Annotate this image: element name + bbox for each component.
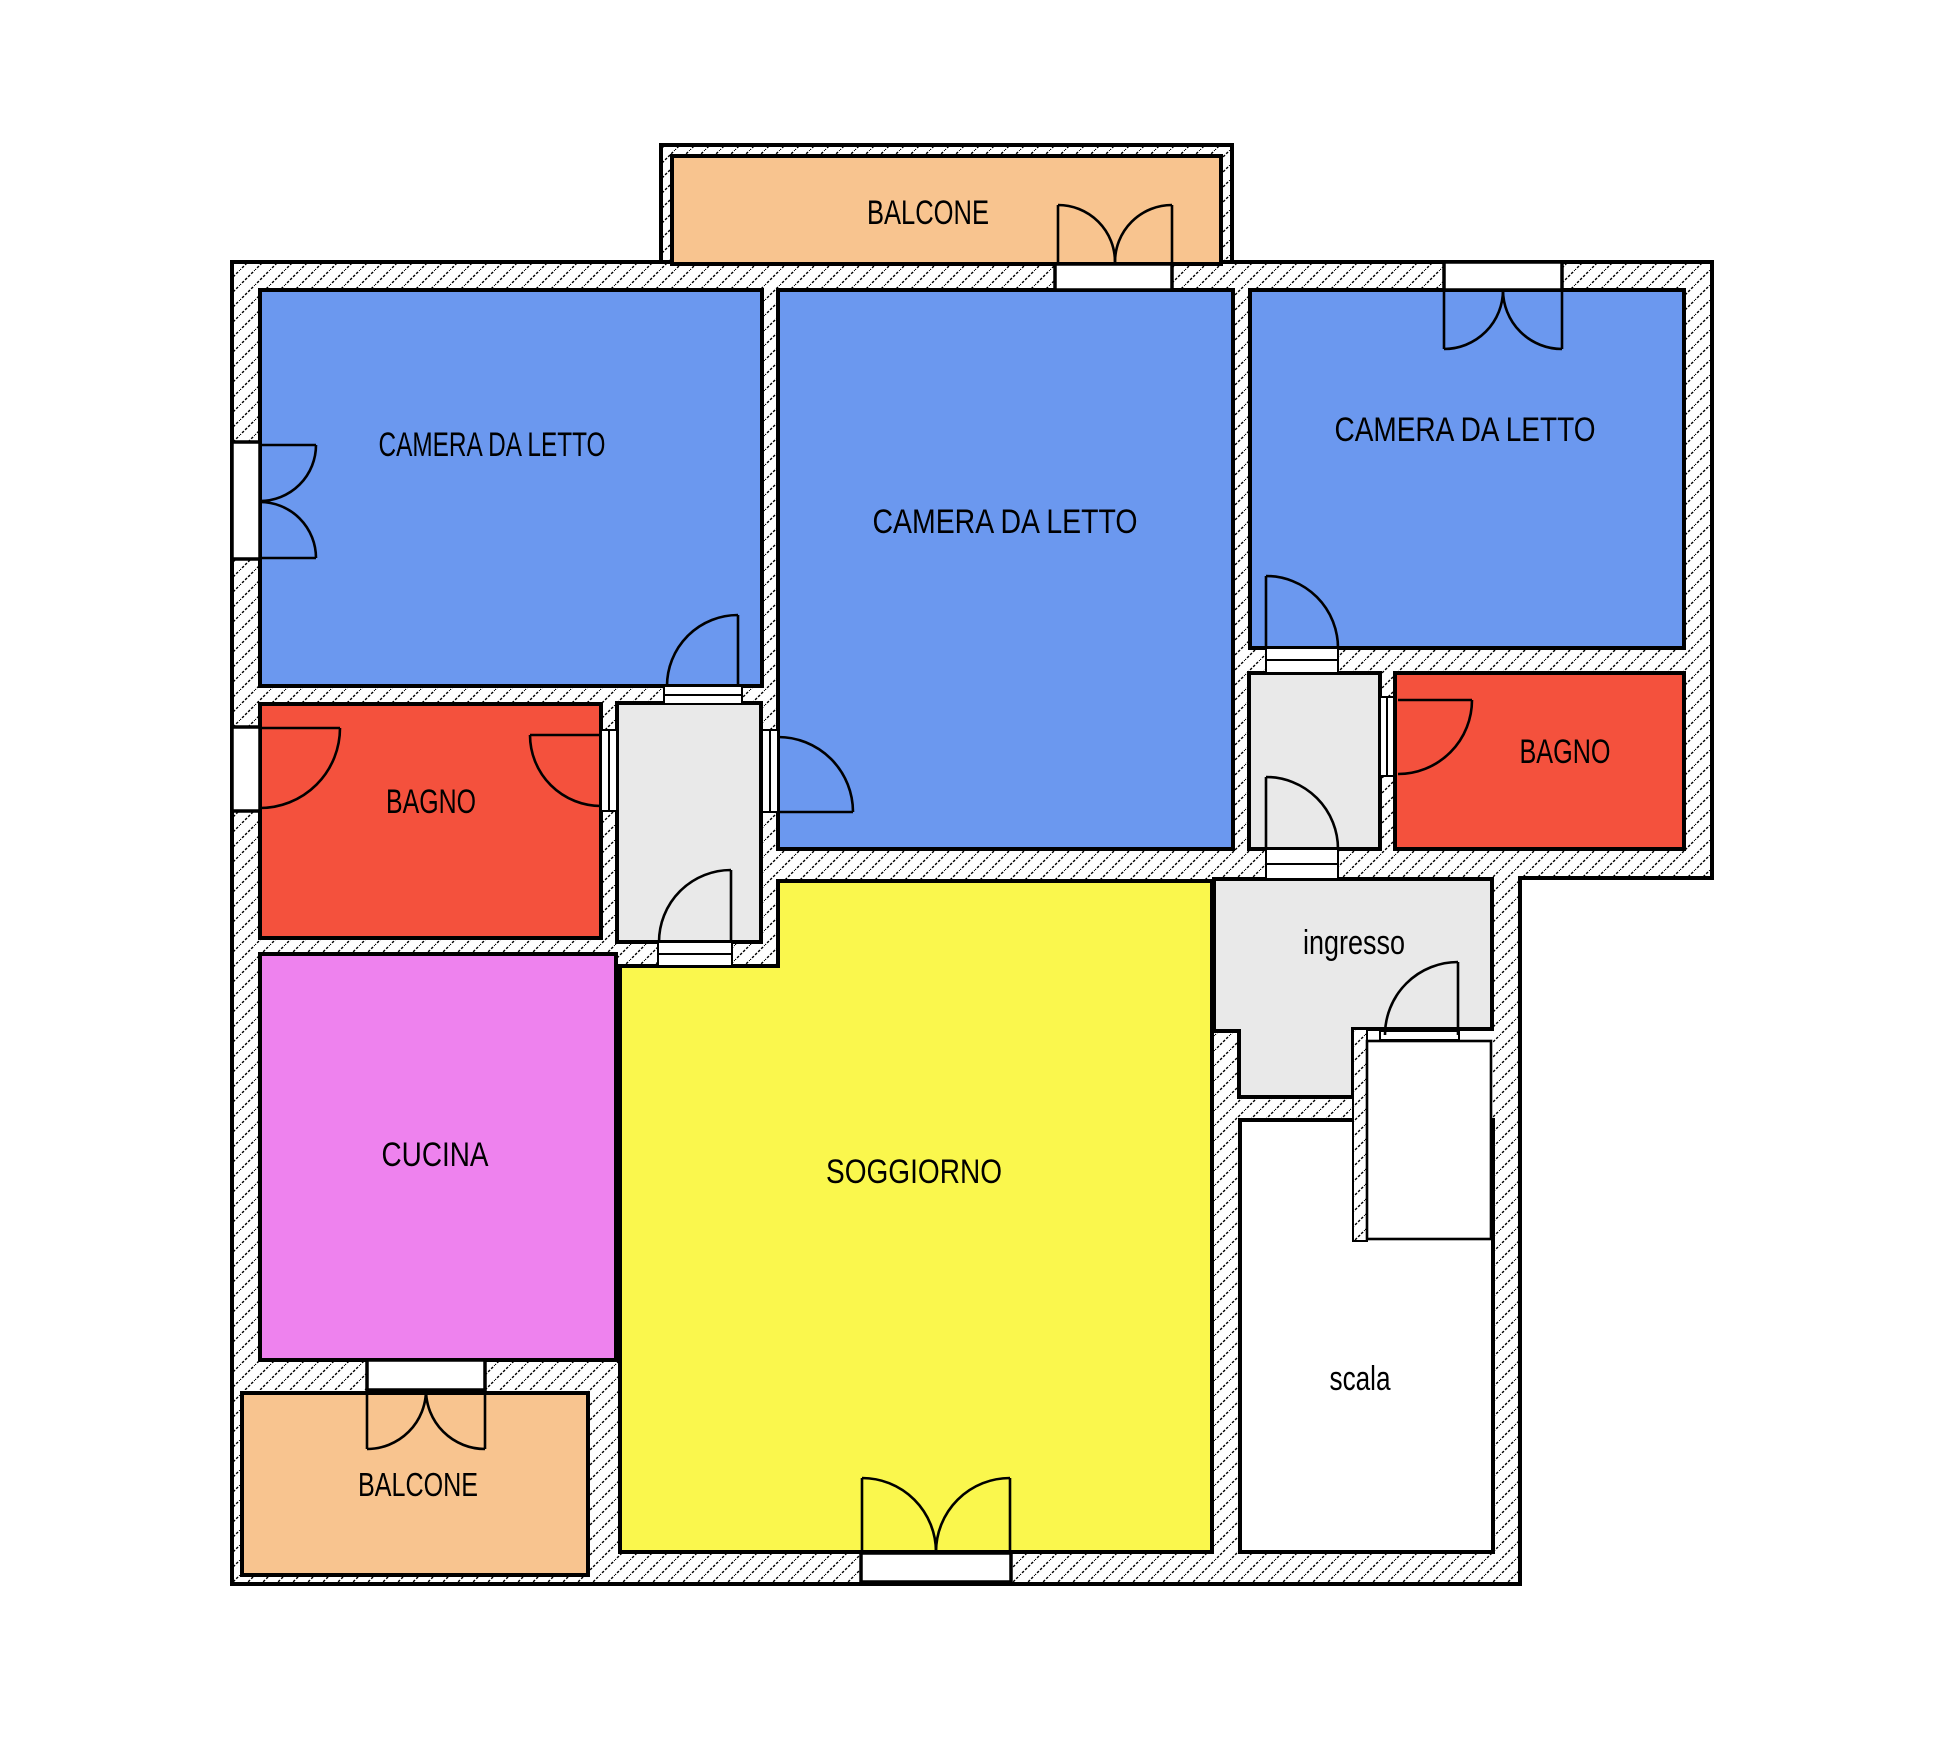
svg-text:BAGNO: BAGNO xyxy=(386,783,476,821)
svg-text:BALCONE: BALCONE xyxy=(867,194,989,232)
svg-text:BAGNO: BAGNO xyxy=(1520,733,1611,771)
svg-text:scala: scala xyxy=(1330,1360,1391,1398)
svg-text:CUCINA: CUCINA xyxy=(382,1136,489,1174)
svg-text:CAMERA DA LETTO: CAMERA DA LETTO xyxy=(1335,411,1596,449)
svg-text:BALCONE: BALCONE xyxy=(358,1466,478,1503)
svg-text:CAMERA DA LETTO: CAMERA DA LETTO xyxy=(873,503,1138,541)
svg-text:ingresso: ingresso xyxy=(1303,924,1405,962)
svg-text:SOGGIORNO: SOGGIORNO xyxy=(826,1153,1002,1191)
svg-text:CAMERA DA LETTO: CAMERA DA LETTO xyxy=(379,426,606,464)
